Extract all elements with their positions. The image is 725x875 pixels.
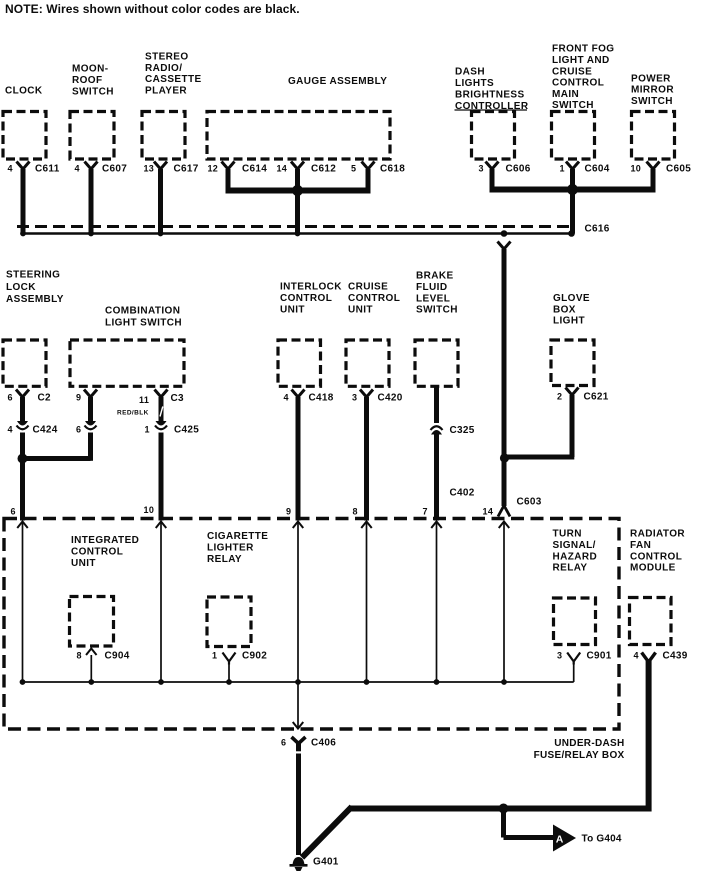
svg-text:C402: C402 [450,488,475,499]
svg-text:BRAKE: BRAKE [416,271,454,282]
svg-text:BRIGHTNESS: BRIGHTNESS [455,89,525,100]
svg-text:MODULE: MODULE [630,563,676,574]
svg-text:12: 12 [208,164,218,174]
svg-text:RED/BLK: RED/BLK [117,410,149,417]
svg-text:9: 9 [286,507,291,517]
svg-text:1: 1 [145,425,150,435]
svg-text:SWITCH: SWITCH [552,100,594,111]
svg-text:C325: C325 [450,425,475,436]
svg-text:ROOF: ROOF [72,75,103,86]
svg-text:C902: C902 [242,651,267,662]
svg-text:LIGHTER: LIGHTER [207,543,254,554]
svg-text:ASSEMBLY: ASSEMBLY [6,294,64,305]
svg-text:INTEGRATED: INTEGRATED [71,535,139,546]
svg-text:C420: C420 [378,393,403,404]
svg-text:2: 2 [557,392,562,402]
svg-text:C607: C607 [102,164,127,175]
svg-text:To G404: To G404 [582,834,622,845]
svg-text:C439: C439 [663,651,688,662]
svg-text:C2: C2 [38,393,52,404]
svg-text:CONTROL: CONTROL [630,551,682,562]
svg-text:C406: C406 [311,738,336,749]
svg-text:SWITCH: SWITCH [631,96,673,107]
svg-text:BOX: BOX [553,304,576,315]
svg-text:10: 10 [144,505,155,515]
svg-text:C901: C901 [587,651,612,662]
svg-text:LIGHT: LIGHT [553,316,585,327]
svg-text:C424: C424 [33,425,58,436]
svg-text:LOCK: LOCK [6,282,36,293]
svg-text:C612: C612 [311,164,336,175]
svg-text:9: 9 [76,393,81,403]
svg-text:C904: C904 [105,651,130,662]
svg-text:C604: C604 [585,164,610,175]
svg-text:7: 7 [423,507,428,517]
svg-text:CONTROL: CONTROL [552,78,604,89]
svg-text:C3: C3 [171,393,185,404]
svg-text:NOTE: Wires shown without colo: NOTE: Wires shown without color codes ar… [5,2,300,16]
svg-text:C418: C418 [309,393,334,404]
svg-text:C611: C611 [35,164,60,175]
svg-text:LIGHTS: LIGHTS [455,78,494,89]
svg-text:C621: C621 [584,392,609,403]
svg-text:POWER: POWER [631,73,671,84]
svg-text:6: 6 [11,507,16,517]
svg-text:6: 6 [281,738,286,748]
svg-text:14: 14 [277,164,287,174]
svg-text:STEERING: STEERING [6,270,60,281]
svg-text:11: 11 [139,395,149,405]
svg-text:4: 4 [284,393,289,403]
svg-text:RELAY: RELAY [207,554,242,565]
svg-text:4: 4 [75,164,80,174]
svg-text:CRUISE: CRUISE [348,282,388,293]
svg-text:GAUGE ASSEMBLY: GAUGE ASSEMBLY [288,76,387,87]
svg-text:4: 4 [8,425,13,435]
svg-text:MAIN: MAIN [552,89,579,100]
svg-text:STEREO: STEREO [145,52,189,63]
svg-text:TURN: TURN [553,529,582,540]
svg-text:RELAY: RELAY [553,563,588,574]
svg-text:SIGNAL/: SIGNAL/ [553,540,596,551]
svg-text:UNIT: UNIT [280,304,305,315]
svg-text:GLOVE: GLOVE [553,293,590,304]
svg-text:C616: C616 [585,224,610,235]
svg-text:LIGHT AND: LIGHT AND [552,55,610,66]
svg-text:A: A [556,834,564,846]
svg-text:CLOCK: CLOCK [5,86,43,97]
svg-text:HAZARD: HAZARD [553,551,598,562]
svg-text:UNIT: UNIT [348,304,373,315]
svg-text:3: 3 [557,651,562,661]
svg-text:CONTROL: CONTROL [348,293,400,304]
svg-text:RADIATOR: RADIATOR [630,529,685,540]
svg-text:1: 1 [212,651,217,661]
svg-text:6: 6 [76,425,81,435]
svg-text:MOON-: MOON- [72,64,108,75]
svg-text:SWITCH: SWITCH [416,305,458,316]
svg-text:CASSETTE: CASSETTE [145,74,202,85]
svg-text:13: 13 [144,164,154,174]
svg-text:C606: C606 [506,164,531,175]
svg-text:G401: G401 [313,857,339,868]
svg-text:C425: C425 [174,425,199,436]
svg-text:CONTROL: CONTROL [280,293,332,304]
svg-text:FLUID: FLUID [416,282,447,293]
svg-text:UNDER-DASH: UNDER-DASH [554,738,624,749]
svg-text:COMBINATION: COMBINATION [105,306,180,317]
svg-text:3: 3 [352,393,357,403]
svg-text:5: 5 [351,164,356,174]
svg-text:C617: C617 [174,164,199,175]
svg-text:6: 6 [8,393,13,403]
svg-text:FUSE/RELAY BOX: FUSE/RELAY BOX [534,750,625,761]
svg-text:LIGHT SWITCH: LIGHT SWITCH [105,318,182,329]
svg-text:10: 10 [631,164,641,174]
svg-text:3: 3 [479,164,484,174]
svg-text:FAN: FAN [630,540,651,551]
svg-text:SWITCH: SWITCH [72,86,114,97]
svg-text:UNIT: UNIT [71,558,96,569]
svg-text:CIGARETTE: CIGARETTE [207,531,268,542]
svg-text:14: 14 [483,507,494,517]
svg-text:8: 8 [77,651,82,661]
svg-text:RADIO/: RADIO/ [145,63,182,74]
svg-text:1: 1 [560,164,565,174]
svg-text:C603: C603 [517,497,542,508]
svg-text:C618: C618 [380,164,405,175]
svg-text:C614: C614 [242,164,267,175]
svg-text:LEVEL: LEVEL [416,293,450,304]
svg-text:C605: C605 [666,164,691,175]
svg-text:4: 4 [634,651,639,661]
svg-text:4: 4 [8,164,13,174]
svg-text:CRUISE: CRUISE [552,66,592,77]
svg-text:MIRROR: MIRROR [631,85,674,96]
svg-text:FRONT FOG: FRONT FOG [552,44,614,55]
svg-text:DASH: DASH [455,66,485,77]
svg-text:INTERLOCK: INTERLOCK [280,282,342,293]
svg-text:CONTROL: CONTROL [71,547,123,558]
svg-text:PLAYER: PLAYER [145,85,187,96]
svg-text:8: 8 [353,507,358,517]
